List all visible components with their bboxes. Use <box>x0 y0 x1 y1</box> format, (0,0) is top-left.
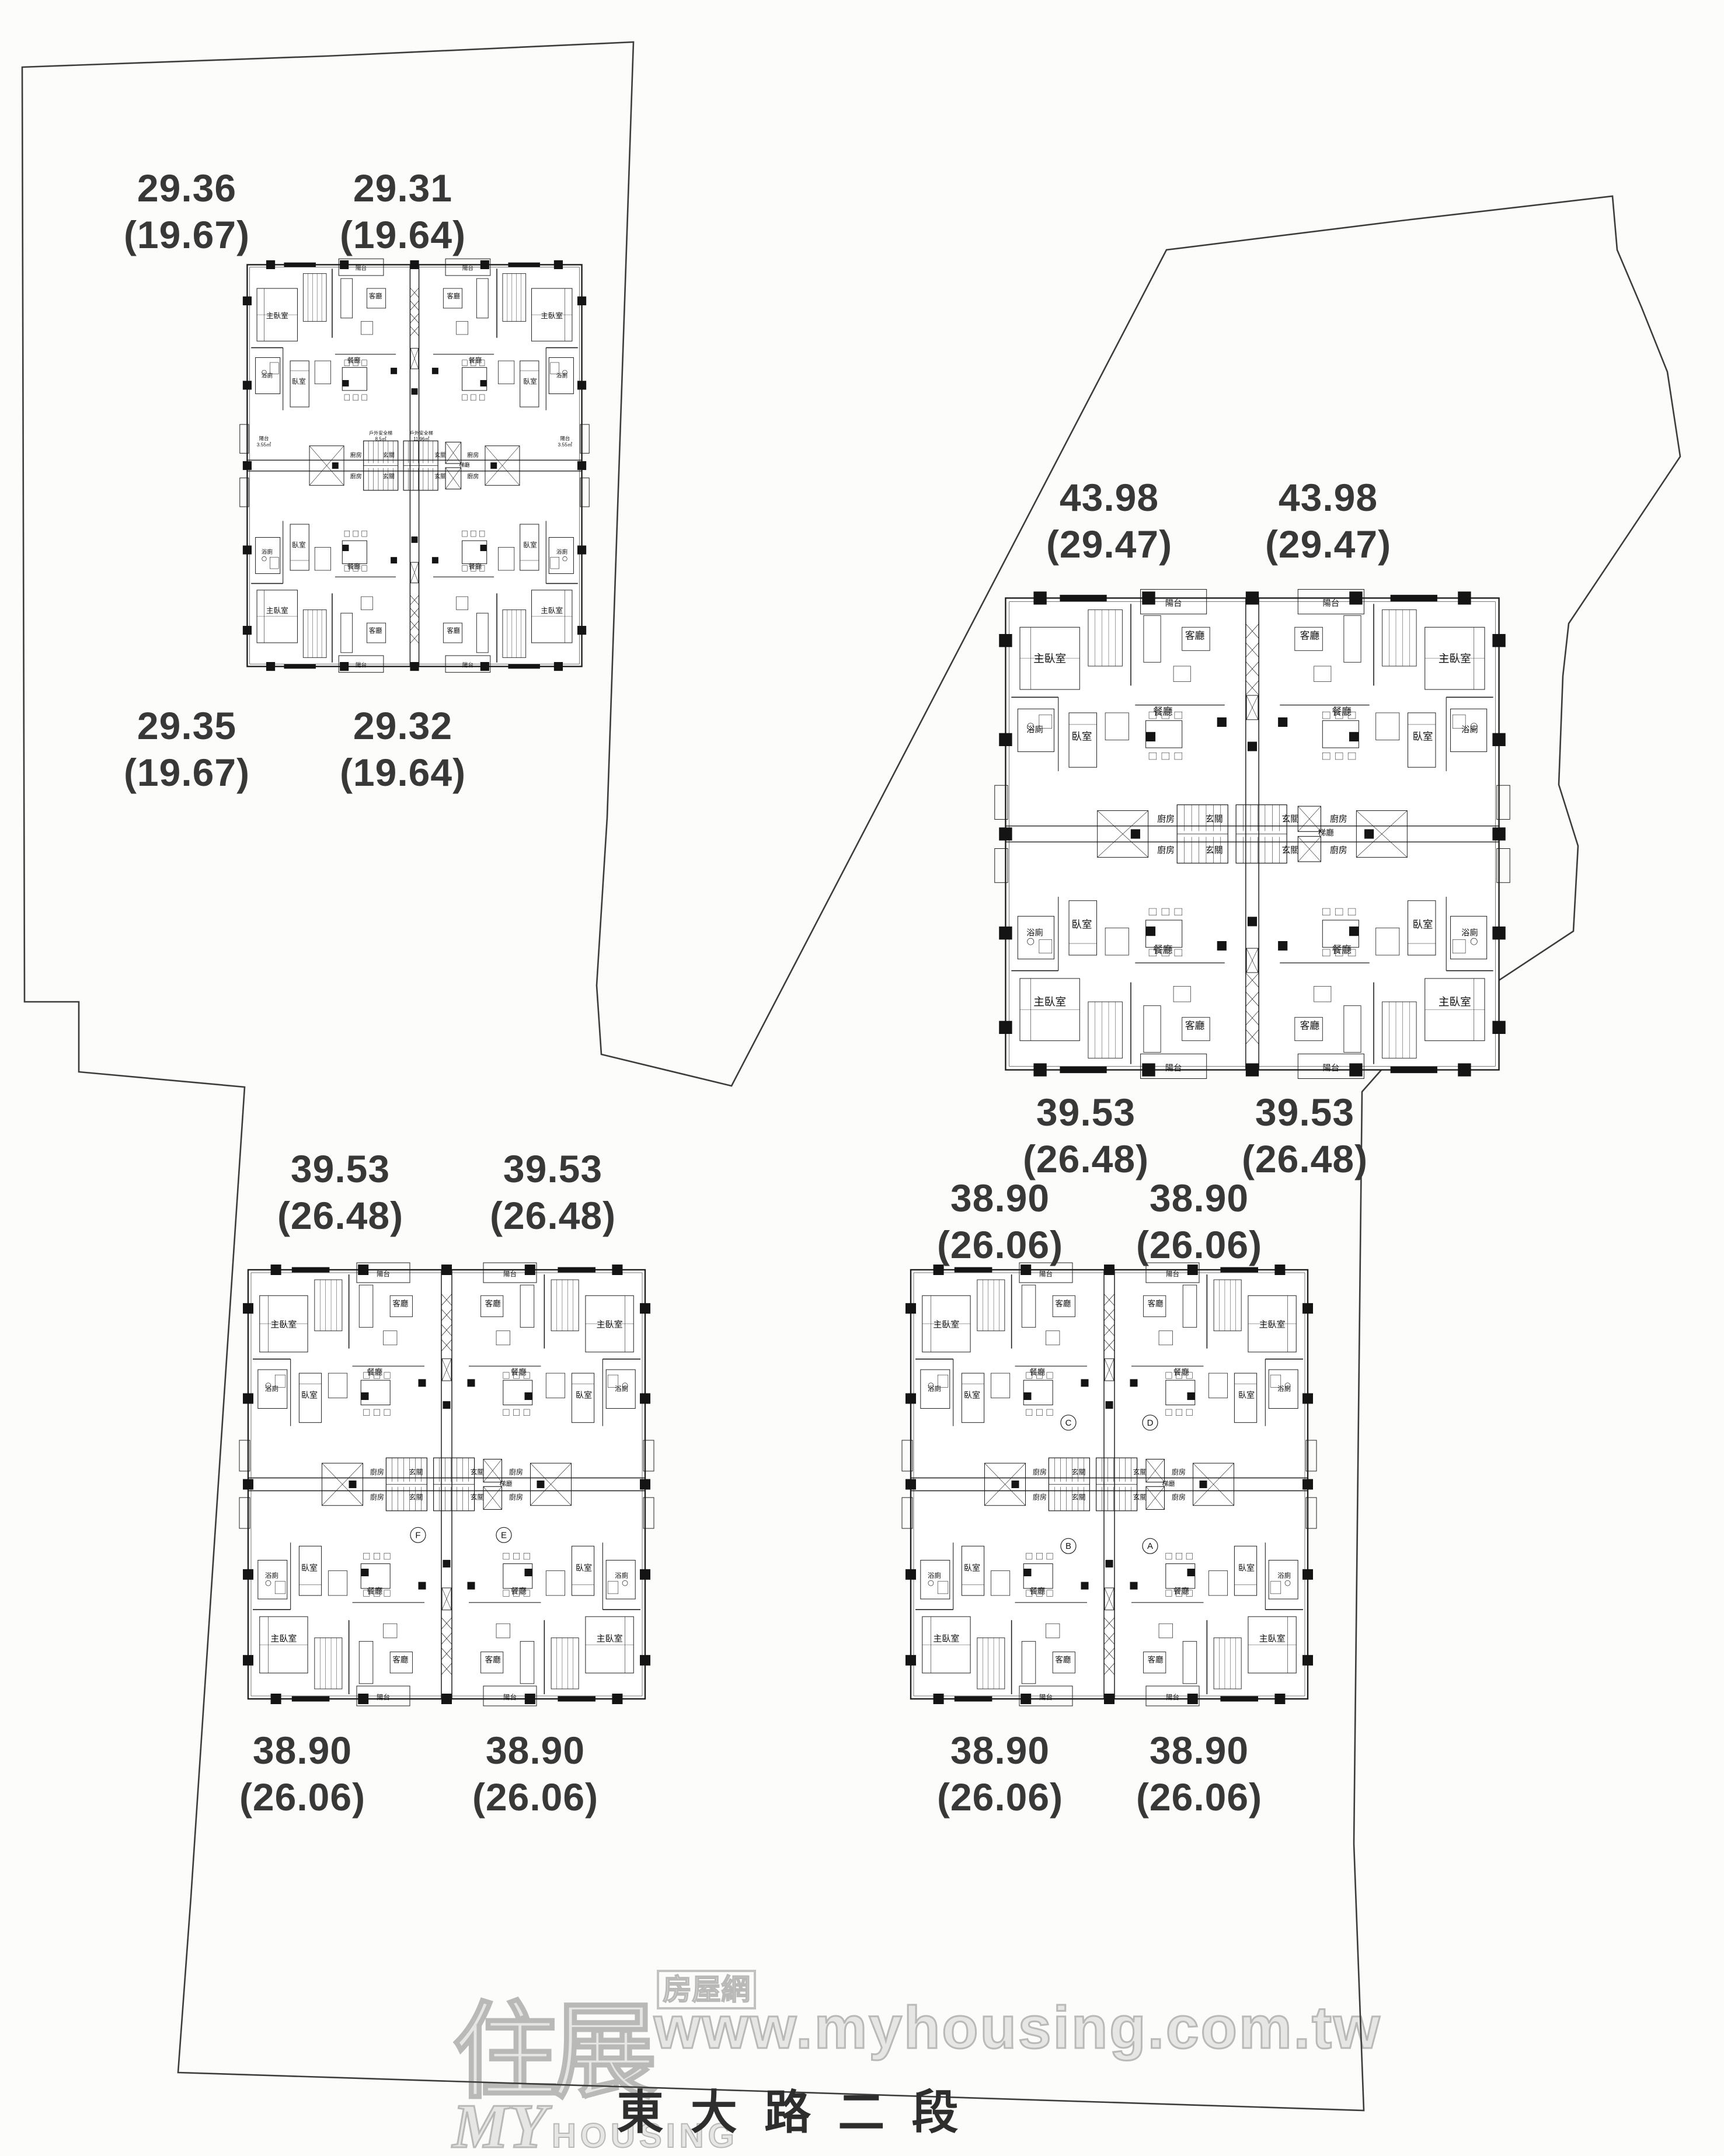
svg-text:客廳: 客廳 <box>447 626 460 635</box>
svg-text:主臥室: 主臥室 <box>933 1633 959 1643</box>
svg-text:浴廁: 浴廁 <box>556 371 568 379</box>
svg-text:廚房: 廚房 <box>350 451 362 459</box>
svg-text:客廳: 客廳 <box>1148 1655 1164 1664</box>
svg-text:廚房: 廚房 <box>370 1468 384 1476</box>
svg-text:客廳: 客廳 <box>369 626 382 635</box>
svg-text:梯廳: 梯廳 <box>1318 828 1334 837</box>
svg-text:廚房: 廚房 <box>1033 1493 1047 1502</box>
svg-text:餐廳: 餐廳 <box>511 1367 527 1377</box>
svg-text:臥室: 臥室 <box>964 1390 980 1399</box>
svg-text:主臥室: 主臥室 <box>270 1320 297 1330</box>
svg-text:客廳: 客廳 <box>1300 630 1320 641</box>
svg-text:玄關: 玄關 <box>409 1493 423 1502</box>
site-svg: 陽台陽台陽台陽台陽台3.55㎡陽台3.55㎡玄關玄關玄關玄關廚房廚房廚房廚房戶外… <box>0 0 1724 2156</box>
svg-text:主臥室: 主臥室 <box>597 1633 623 1643</box>
svg-text:浴廁: 浴廁 <box>262 371 273 379</box>
svg-text:玄關: 玄關 <box>1281 814 1299 824</box>
svg-text:廚房: 廚房 <box>1172 1468 1186 1476</box>
svg-text:浴廁: 浴廁 <box>1026 928 1043 938</box>
svg-text:玄關: 玄關 <box>470 1468 484 1476</box>
svg-text:主臥室: 主臥室 <box>541 311 563 320</box>
svg-text:餐廳: 餐廳 <box>1153 945 1173 956</box>
area-label-b2-br: 39.53(26.48) <box>1242 1089 1368 1182</box>
svg-text:陽台: 陽台 <box>1165 598 1182 608</box>
svg-text:主臥室: 主臥室 <box>1259 1320 1286 1330</box>
area-label-b3-tr: 39.53(26.48) <box>490 1145 616 1239</box>
svg-text:主臥室: 主臥室 <box>266 311 288 320</box>
svg-text:臥室: 臥室 <box>964 1563 980 1573</box>
svg-text:餐廳: 餐廳 <box>469 356 482 364</box>
svg-text:主臥室: 主臥室 <box>541 606 563 615</box>
svg-text:臥室: 臥室 <box>523 541 537 549</box>
svg-text:臥室: 臥室 <box>1072 731 1092 743</box>
area-label-b4-br: 38.90(26.06) <box>1136 1727 1262 1820</box>
svg-text:梯廳: 梯廳 <box>1162 1479 1175 1488</box>
svg-text:廚房: 廚房 <box>350 472 362 480</box>
svg-text:C: C <box>1065 1418 1072 1428</box>
svg-text:F: F <box>415 1530 420 1540</box>
svg-text:B: B <box>1065 1541 1071 1551</box>
building-plan-2: 陽台陽台陽台陽台玄關玄關玄關玄關廚房廚房廚房廚房梯廳主臥室臥室浴廁客廳餐廳主臥室… <box>995 590 1510 1079</box>
svg-text:臥室: 臥室 <box>301 1563 318 1573</box>
svg-text:客廳: 客廳 <box>485 1298 501 1308</box>
svg-text:臥室: 臥室 <box>523 378 537 386</box>
svg-text:陽台: 陽台 <box>377 1270 390 1278</box>
svg-text:玄關: 玄關 <box>470 1493 484 1502</box>
svg-text:餐廳: 餐廳 <box>1332 706 1352 717</box>
svg-text:廚房: 廚房 <box>467 451 479 459</box>
area-label-b1-tr: 29.31(19.64) <box>340 165 466 258</box>
svg-text:陽台: 陽台 <box>377 1693 390 1701</box>
area-label-b2-tr: 43.98(29.47) <box>1265 474 1391 567</box>
svg-text:浴廁: 浴廁 <box>265 1572 278 1580</box>
site-plan-canvas: 住展房屋網 MYHOUSING www.myhousing.com.tw 陽台陽… <box>0 0 1724 2156</box>
svg-text:客廳: 客廳 <box>1300 1020 1320 1032</box>
svg-text:廚房: 廚房 <box>1330 845 1347 855</box>
svg-text:主臥室: 主臥室 <box>1033 652 1066 664</box>
svg-text:浴廁: 浴廁 <box>262 548 273 556</box>
svg-text:玄關: 玄關 <box>1133 1468 1147 1476</box>
svg-text:餐廳: 餐廳 <box>1332 945 1352 956</box>
svg-text:臥室: 臥室 <box>1413 918 1433 930</box>
svg-text:餐廳: 餐廳 <box>367 1367 382 1377</box>
svg-text:臥室: 臥室 <box>1238 1390 1255 1399</box>
svg-text:客廳: 客廳 <box>1185 1020 1205 1032</box>
svg-text:陽台: 陽台 <box>503 1270 517 1278</box>
svg-text:陽台: 陽台 <box>356 264 367 272</box>
area-label-b1-br: 29.32(19.64) <box>340 702 466 796</box>
svg-text:客廳: 客廳 <box>1055 1298 1071 1308</box>
svg-text:廚房: 廚房 <box>1033 1468 1047 1476</box>
svg-text:餐廳: 餐廳 <box>347 356 361 364</box>
svg-text:A: A <box>1147 1541 1153 1551</box>
svg-text:8.5㎡: 8.5㎡ <box>375 437 386 442</box>
svg-text:陽台: 陽台 <box>503 1693 517 1701</box>
svg-text:臥室: 臥室 <box>292 541 306 549</box>
svg-text:臥室: 臥室 <box>292 378 306 386</box>
svg-text:浴廁: 浴廁 <box>615 1572 628 1580</box>
svg-text:陽台: 陽台 <box>1323 598 1340 608</box>
svg-text:陽台: 陽台 <box>1039 1693 1053 1701</box>
svg-text:梯廳: 梯廳 <box>459 462 470 468</box>
svg-text:主臥室: 主臥室 <box>597 1320 623 1330</box>
svg-text:廚房: 廚房 <box>1330 813 1347 824</box>
svg-text:臥室: 臥室 <box>301 1390 318 1399</box>
svg-text:玄關: 玄關 <box>434 451 446 459</box>
building-plan-3: 陽台陽台陽台陽台玄關玄關玄關玄關廚房廚房廚房廚房梯廳主臥室臥室浴廁客廳餐廳主臥室… <box>239 1263 654 1706</box>
svg-text:陽台: 陽台 <box>560 436 570 441</box>
svg-text:客廳: 客廳 <box>485 1655 501 1664</box>
svg-text:主臥室: 主臥室 <box>266 606 288 615</box>
svg-text:廚房: 廚房 <box>509 1468 523 1476</box>
svg-text:餐廳: 餐廳 <box>367 1586 382 1596</box>
svg-text:浴廁: 浴廁 <box>928 1572 941 1580</box>
area-label-b4-tr: 38.90(26.06) <box>1136 1175 1262 1268</box>
svg-text:玄關: 玄關 <box>1281 845 1299 855</box>
svg-text:玄關: 玄關 <box>383 451 395 459</box>
svg-text:客廳: 客廳 <box>1055 1655 1071 1664</box>
svg-text:餐廳: 餐廳 <box>1029 1586 1045 1596</box>
svg-text:玄關: 玄關 <box>434 472 446 480</box>
area-label-b1-bl: 29.35(19.67) <box>124 702 250 796</box>
area-label-b3-br: 38.90(26.06) <box>472 1727 598 1820</box>
area-label-b2-tl: 43.98(29.47) <box>1046 474 1172 567</box>
road-name: 東 大 路 二 段 <box>617 2075 966 2143</box>
svg-text:客廳: 客廳 <box>392 1655 408 1664</box>
svg-text:廚房: 廚房 <box>467 472 479 480</box>
svg-text:玄關: 玄關 <box>409 1468 423 1476</box>
svg-text:11.96㎡: 11.96㎡ <box>413 437 429 442</box>
svg-text:陽台: 陽台 <box>1166 1270 1179 1278</box>
svg-text:客廳: 客廳 <box>1185 630 1205 641</box>
svg-text:廚房: 廚房 <box>1157 845 1175 855</box>
svg-text:餐廳: 餐廳 <box>511 1586 527 1596</box>
svg-text:陽台: 陽台 <box>462 661 473 668</box>
svg-text:客廳: 客廳 <box>1148 1298 1164 1308</box>
svg-text:E: E <box>501 1530 507 1540</box>
svg-text:主臥室: 主臥室 <box>270 1633 297 1643</box>
svg-text:廚房: 廚房 <box>1157 813 1175 824</box>
svg-text:客廳: 客廳 <box>447 292 460 300</box>
svg-text:梯廳: 梯廳 <box>500 1479 513 1488</box>
svg-text:陽台: 陽台 <box>259 436 269 441</box>
svg-text:陽台: 陽台 <box>462 264 473 272</box>
svg-text:3.55㎡: 3.55㎡ <box>257 442 271 448</box>
svg-text:浴廁: 浴廁 <box>1277 1384 1291 1392</box>
svg-text:客廳: 客廳 <box>392 1298 408 1308</box>
building-plan-4: 陽台陽台陽台陽台玄關玄關玄關玄關廚房廚房廚房廚房梯廳主臥室臥室浴廁客廳餐廳主臥室… <box>902 1263 1316 1706</box>
area-label-b4-tl: 38.90(26.06) <box>937 1175 1063 1268</box>
svg-text:臥室: 臥室 <box>1072 918 1092 930</box>
area-label-b3-tl: 39.53(26.48) <box>277 1145 403 1239</box>
svg-text:廚房: 廚房 <box>370 1493 384 1502</box>
svg-text:餐廳: 餐廳 <box>1029 1367 1045 1377</box>
svg-text:浴廁: 浴廁 <box>1461 928 1478 938</box>
svg-text:D: D <box>1147 1418 1154 1428</box>
svg-text:臥室: 臥室 <box>576 1390 592 1399</box>
svg-text:玄關: 玄關 <box>383 472 395 480</box>
area-label-b1-tl: 29.36(19.67) <box>124 165 250 258</box>
svg-text:浴廁: 浴廁 <box>928 1384 941 1392</box>
svg-text:臥室: 臥室 <box>576 1563 592 1573</box>
svg-text:陽台: 陽台 <box>1165 1063 1182 1073</box>
svg-text:餐廳: 餐廳 <box>1153 706 1173 717</box>
svg-text:主臥室: 主臥室 <box>1259 1633 1286 1643</box>
svg-text:主臥室: 主臥室 <box>1033 996 1066 1008</box>
svg-text:玄關: 玄關 <box>1206 845 1223 855</box>
area-label-b4-bl: 38.90(26.06) <box>937 1727 1063 1820</box>
svg-text:餐廳: 餐廳 <box>469 562 482 570</box>
svg-text:陽台: 陽台 <box>1039 1270 1053 1278</box>
building-plan-1: 陽台陽台陽台陽台陽台3.55㎡陽台3.55㎡玄關玄關玄關玄關廚房廚房廚房廚房戶外… <box>240 259 589 672</box>
svg-text:廚房: 廚房 <box>1172 1493 1186 1502</box>
svg-text:浴廁: 浴廁 <box>1461 724 1478 734</box>
area-label-b3-bl: 38.90(26.06) <box>239 1727 365 1820</box>
svg-text:餐廳: 餐廳 <box>1173 1367 1189 1377</box>
svg-text:浴廁: 浴廁 <box>265 1384 278 1392</box>
svg-text:浴廁: 浴廁 <box>556 548 568 556</box>
svg-text:玄關: 玄關 <box>1206 814 1223 824</box>
svg-text:臥室: 臥室 <box>1238 1563 1255 1573</box>
svg-text:3.55㎡: 3.55㎡ <box>558 442 573 448</box>
svg-text:玄關: 玄關 <box>1071 1468 1085 1476</box>
svg-text:浴廁: 浴廁 <box>615 1384 628 1392</box>
area-label-b2-bl: 39.53(26.48) <box>1023 1089 1149 1182</box>
svg-text:餐廳: 餐廳 <box>1173 1586 1189 1596</box>
svg-text:臥室: 臥室 <box>1413 731 1433 743</box>
svg-text:陽台: 陽台 <box>1166 1693 1179 1701</box>
svg-text:陽台: 陽台 <box>1323 1063 1340 1073</box>
svg-text:戶外安全梯: 戶外安全梯 <box>410 430 433 436</box>
svg-text:戶外安全梯: 戶外安全梯 <box>369 430 392 436</box>
svg-text:廚房: 廚房 <box>509 1493 523 1502</box>
svg-text:玄關: 玄關 <box>1133 1493 1147 1502</box>
svg-text:浴廁: 浴廁 <box>1026 724 1043 734</box>
svg-text:陽台: 陽台 <box>356 661 367 668</box>
svg-text:主臥室: 主臥室 <box>933 1320 959 1330</box>
svg-text:浴廁: 浴廁 <box>1277 1572 1291 1580</box>
svg-text:客廳: 客廳 <box>369 292 382 300</box>
svg-text:玄關: 玄關 <box>1071 1493 1085 1502</box>
svg-text:主臥室: 主臥室 <box>1439 652 1471 664</box>
svg-text:餐廳: 餐廳 <box>347 562 361 570</box>
svg-text:主臥室: 主臥室 <box>1439 996 1471 1008</box>
